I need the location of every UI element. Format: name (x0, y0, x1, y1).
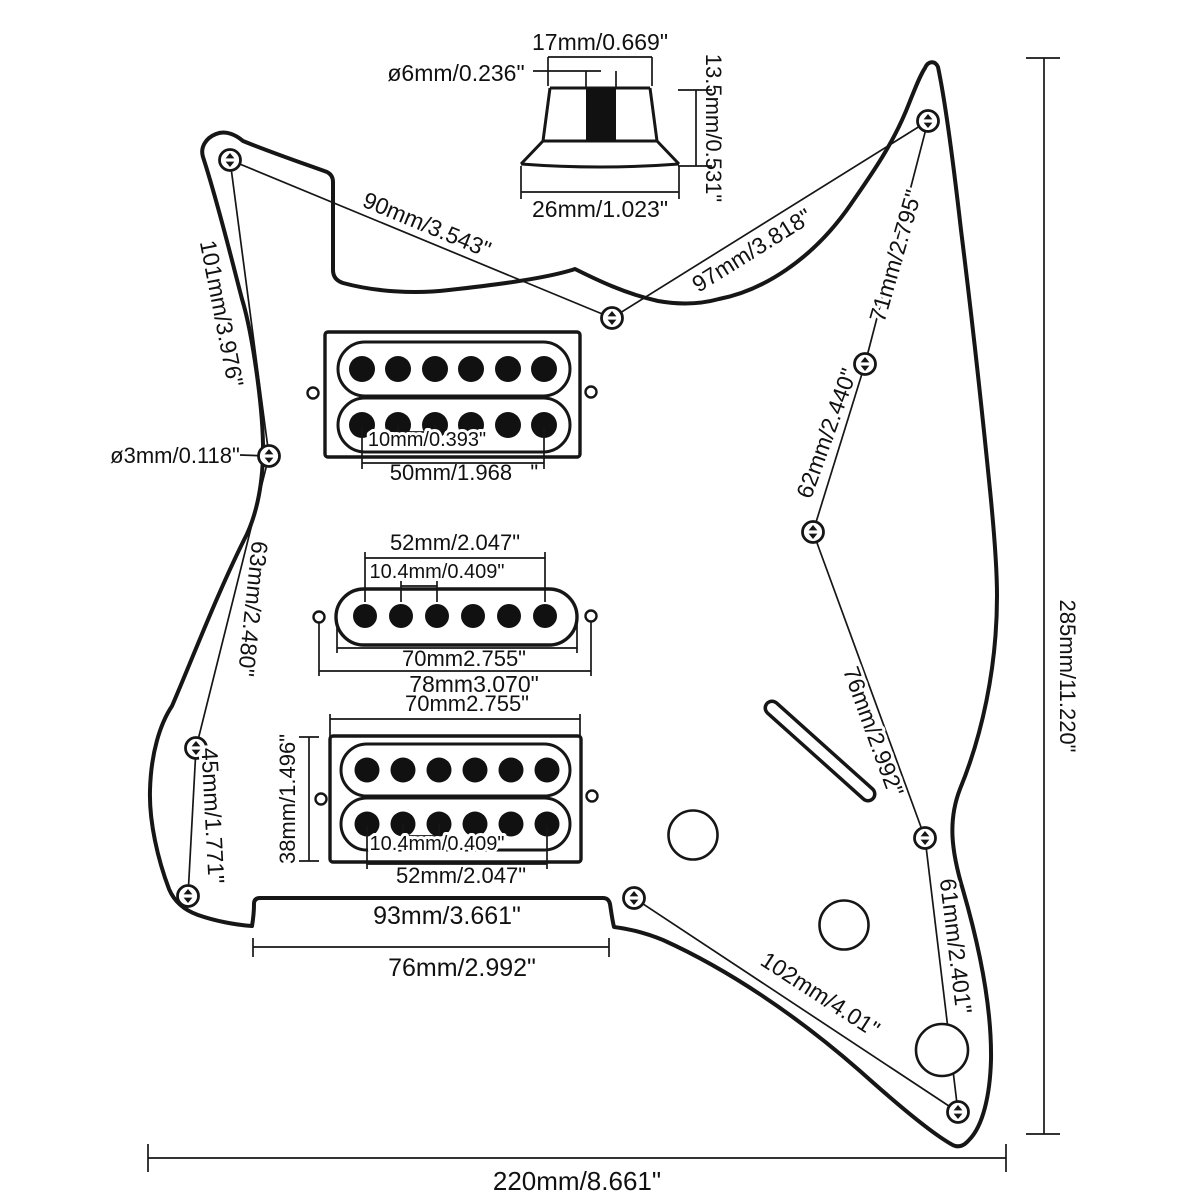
pole-piece (458, 356, 484, 382)
label-61mm: 61mm/2.401" (935, 877, 977, 1015)
knob-side-right (650, 88, 657, 141)
label-71mm: 71mm/2.795" (864, 187, 926, 325)
pole-piece (497, 604, 521, 628)
overall-height-label: 285mm/11.220" (1055, 600, 1080, 753)
screw-hole (259, 446, 280, 467)
bridge-pole-span-label: 52mm/2.047" (396, 863, 526, 888)
screw-hole (803, 522, 824, 543)
overall-width-label: 220mm/8.661" (493, 1166, 661, 1196)
screw-hole (948, 1102, 969, 1123)
pot-hole (669, 811, 718, 860)
pole-piece (499, 758, 524, 783)
mount-hole (586, 611, 597, 622)
pole-piece (495, 356, 521, 382)
screw-hole (178, 886, 199, 907)
mid-body-width-label: 70mm2.755" (402, 646, 526, 671)
bridge-height-label: 38mm/1.496" (275, 734, 300, 864)
knob-shaft (586, 88, 616, 141)
mid-pole-spacing-label: 10.4mm/0.409" (370, 561, 505, 583)
pole-piece (422, 356, 448, 382)
knob-base-edge (521, 164, 679, 167)
pole-piece (427, 758, 452, 783)
dim-line-101mm (230, 160, 269, 456)
neck-pocket-screw-span-label: 76mm/2.992" (388, 954, 536, 982)
mount-hole (308, 388, 319, 399)
pot-hole (916, 1024, 968, 1076)
knob-skirt-right (657, 141, 679, 164)
mount-hole (314, 612, 325, 623)
screw-hole (220, 150, 241, 171)
control-knob-detail: 17mm/0.669" ø6mm/0.236" 13.5mm/0.531" 26… (387, 29, 726, 222)
pickguard-screw-holes (178, 111, 969, 1123)
pole-piece (463, 758, 488, 783)
dim-line-90mm (230, 160, 612, 318)
neck-humbucker: 10mm/0.393" 50mm/1.968 " (308, 332, 597, 485)
pole-piece (391, 758, 416, 783)
pole-piece (349, 356, 375, 382)
neck-hb-pole-span-label: 50mm/1.968 " (390, 460, 538, 485)
pole-piece (495, 412, 521, 438)
bridge-pole-spacing-label: 10.4mm/0.409" (370, 833, 505, 855)
knob-skirt-left (521, 141, 543, 164)
screw-hole (918, 111, 939, 132)
bridge-humbucker: 70mm2.755" 38mm/1.496" 10.4mm/0.409" (275, 691, 598, 888)
pole-piece (425, 604, 449, 628)
knob-shaft-diameter-label: ø6mm/0.236" (387, 60, 524, 86)
pickguard-dimension-diagram: 17mm/0.669" ø6mm/0.236" 13.5mm/0.531" 26… (0, 0, 1200, 1200)
pot-hole (820, 901, 869, 950)
label-101mm: 101mm/3.976" (195, 238, 249, 389)
neck-pocket-width-label: 93mm/3.661" (373, 902, 521, 930)
mid-pole-span-label: 52mm/2.047" (390, 530, 520, 555)
knob-top-width-label: 17mm/0.669" (532, 29, 668, 55)
neck-hb-pole-spacing-label: 10mm/0.393" (368, 429, 486, 451)
diagram-canvas: 17mm/0.669" ø6mm/0.236" 13.5mm/0.531" 26… (0, 0, 1200, 1200)
mount-hole (586, 387, 597, 398)
pole-piece (535, 758, 560, 783)
label-screw-hole-diameter: ø3mm/0.118" (110, 443, 240, 468)
screw-hole (855, 354, 876, 375)
screw-hole (602, 308, 623, 329)
label-45mm: 45mm/1.771" (196, 747, 229, 884)
pole-piece (355, 758, 380, 783)
middle-single-coil: 52mm/2.047" 10.4mm/0.409" 70mm2.755" 78m… (314, 530, 597, 697)
bridge-body-width-label: 70mm2.755" (405, 691, 529, 716)
mount-hole (316, 794, 327, 805)
pole-piece (385, 356, 411, 382)
knob-height-label: 13.5mm/0.531" (701, 54, 726, 202)
knob-side-left (543, 88, 550, 141)
pole-piece (531, 356, 557, 382)
knob-base-width-label: 26mm/1.023" (532, 196, 668, 222)
label-90mm: 90mm/3.543" (359, 187, 495, 263)
label-97mm: 97mm/3.818" (687, 203, 816, 297)
dim-line-102mm (634, 898, 958, 1112)
pole-piece (389, 604, 413, 628)
label-63mm: 63mm/2.480" (233, 540, 273, 678)
mount-hole (587, 791, 598, 802)
pole-piece (533, 604, 557, 628)
screw-hole (915, 828, 936, 849)
pole-piece (353, 604, 377, 628)
label-62mm: 62mm/2.440" (791, 365, 862, 502)
screw-hole (624, 888, 645, 909)
control-holes (669, 708, 969, 1076)
label-102mm: 102mm/4.01" (756, 946, 884, 1042)
pole-piece (461, 604, 485, 628)
neck-pocket-dimensions: 93mm/3.661" 76mm/2.992" (253, 902, 609, 982)
middle-pickup-poles (353, 604, 557, 628)
switch-slot-inner (772, 708, 868, 794)
dim-line-45mm (188, 748, 196, 896)
